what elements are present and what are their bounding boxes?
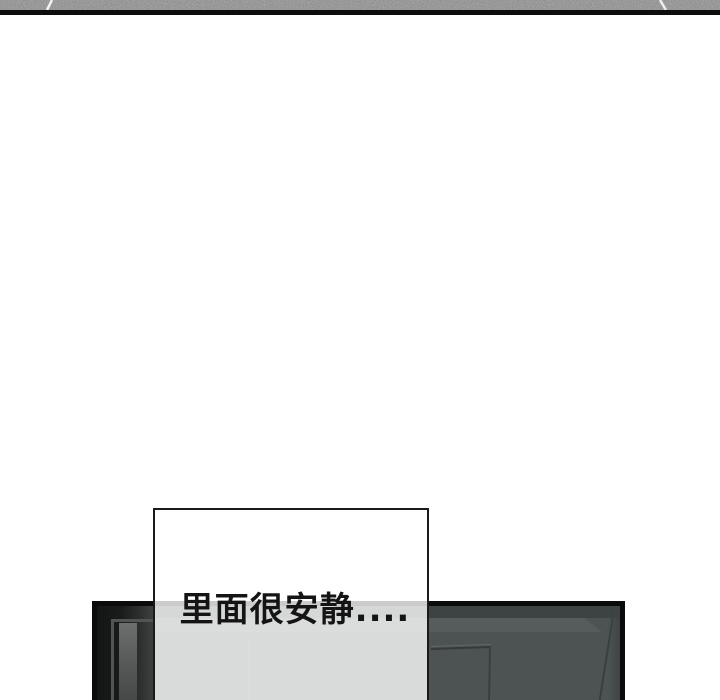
granite-noise — [0, 0, 720, 10]
door-panel-crease-vertical — [488, 646, 491, 700]
floor-edge-line — [0, 10, 720, 15]
dialogue-text: 里面很安静.... — [180, 582, 411, 631]
floor-texture-strip — [0, 0, 720, 10]
comic-page: 里面很安静.... — [0, 0, 720, 700]
granite-texture-svg — [0, 0, 720, 10]
left-doorframe-strip — [119, 623, 137, 700]
right-edge-shade — [608, 606, 620, 700]
speech-bubble: 里面很安静.... — [153, 508, 429, 700]
